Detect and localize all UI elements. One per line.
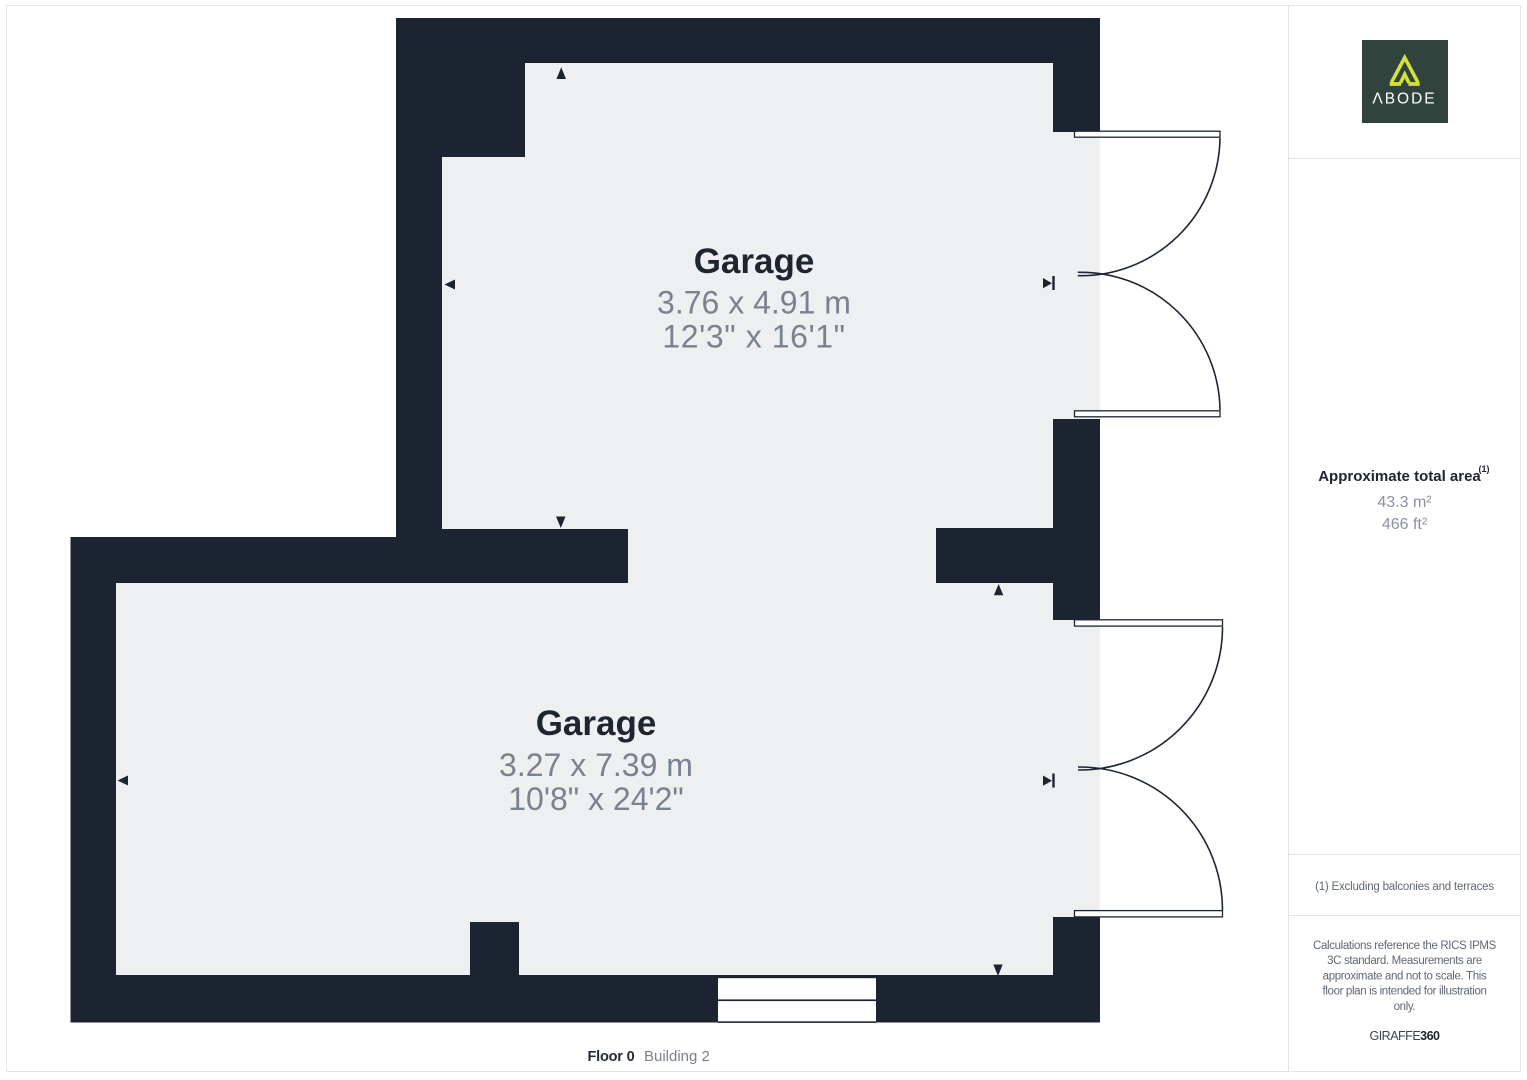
svg-text:12'3" x 16'1": 12'3" x 16'1"	[662, 319, 845, 355]
svg-text:(1) Excluding balconies and te: (1) Excluding balconies and terraces	[1315, 881, 1494, 893]
svg-text:approximate and not to scale.: approximate and not to scale. This	[1323, 970, 1487, 982]
svg-text:3.76 x 4.91 m: 3.76 x 4.91 m	[657, 285, 851, 321]
svg-text:only.: only.	[1394, 1001, 1416, 1013]
svg-text:Approximate total area: Approximate total area	[1318, 468, 1481, 485]
svg-text:ΛBODE: ΛBODE	[1372, 91, 1436, 108]
svg-text:3C standard. Measurements are: 3C standard. Measurements are	[1327, 955, 1482, 967]
svg-text:floor plan is intended for ill: floor plan is intended for illustration	[1322, 986, 1486, 998]
svg-text:GIRAFFE360: GIRAFFE360	[1369, 1029, 1440, 1043]
svg-text:Garage: Garage	[536, 704, 657, 743]
svg-text:43.3 m²: 43.3 m²	[1377, 494, 1432, 511]
svg-text:3.27 x 7.39 m: 3.27 x 7.39 m	[499, 747, 693, 783]
svg-text:(1): (1)	[1479, 464, 1490, 474]
svg-text:Calculations reference the RIC: Calculations reference the RICS IPMS	[1313, 940, 1497, 952]
svg-text:Floor 0: Floor 0	[588, 1049, 635, 1065]
svg-text:466 ft²: 466 ft²	[1382, 516, 1428, 533]
svg-text:Building 2: Building 2	[644, 1048, 710, 1065]
svg-text:Garage: Garage	[694, 242, 815, 281]
svg-text:10'8" x 24'2": 10'8" x 24'2"	[508, 781, 684, 817]
